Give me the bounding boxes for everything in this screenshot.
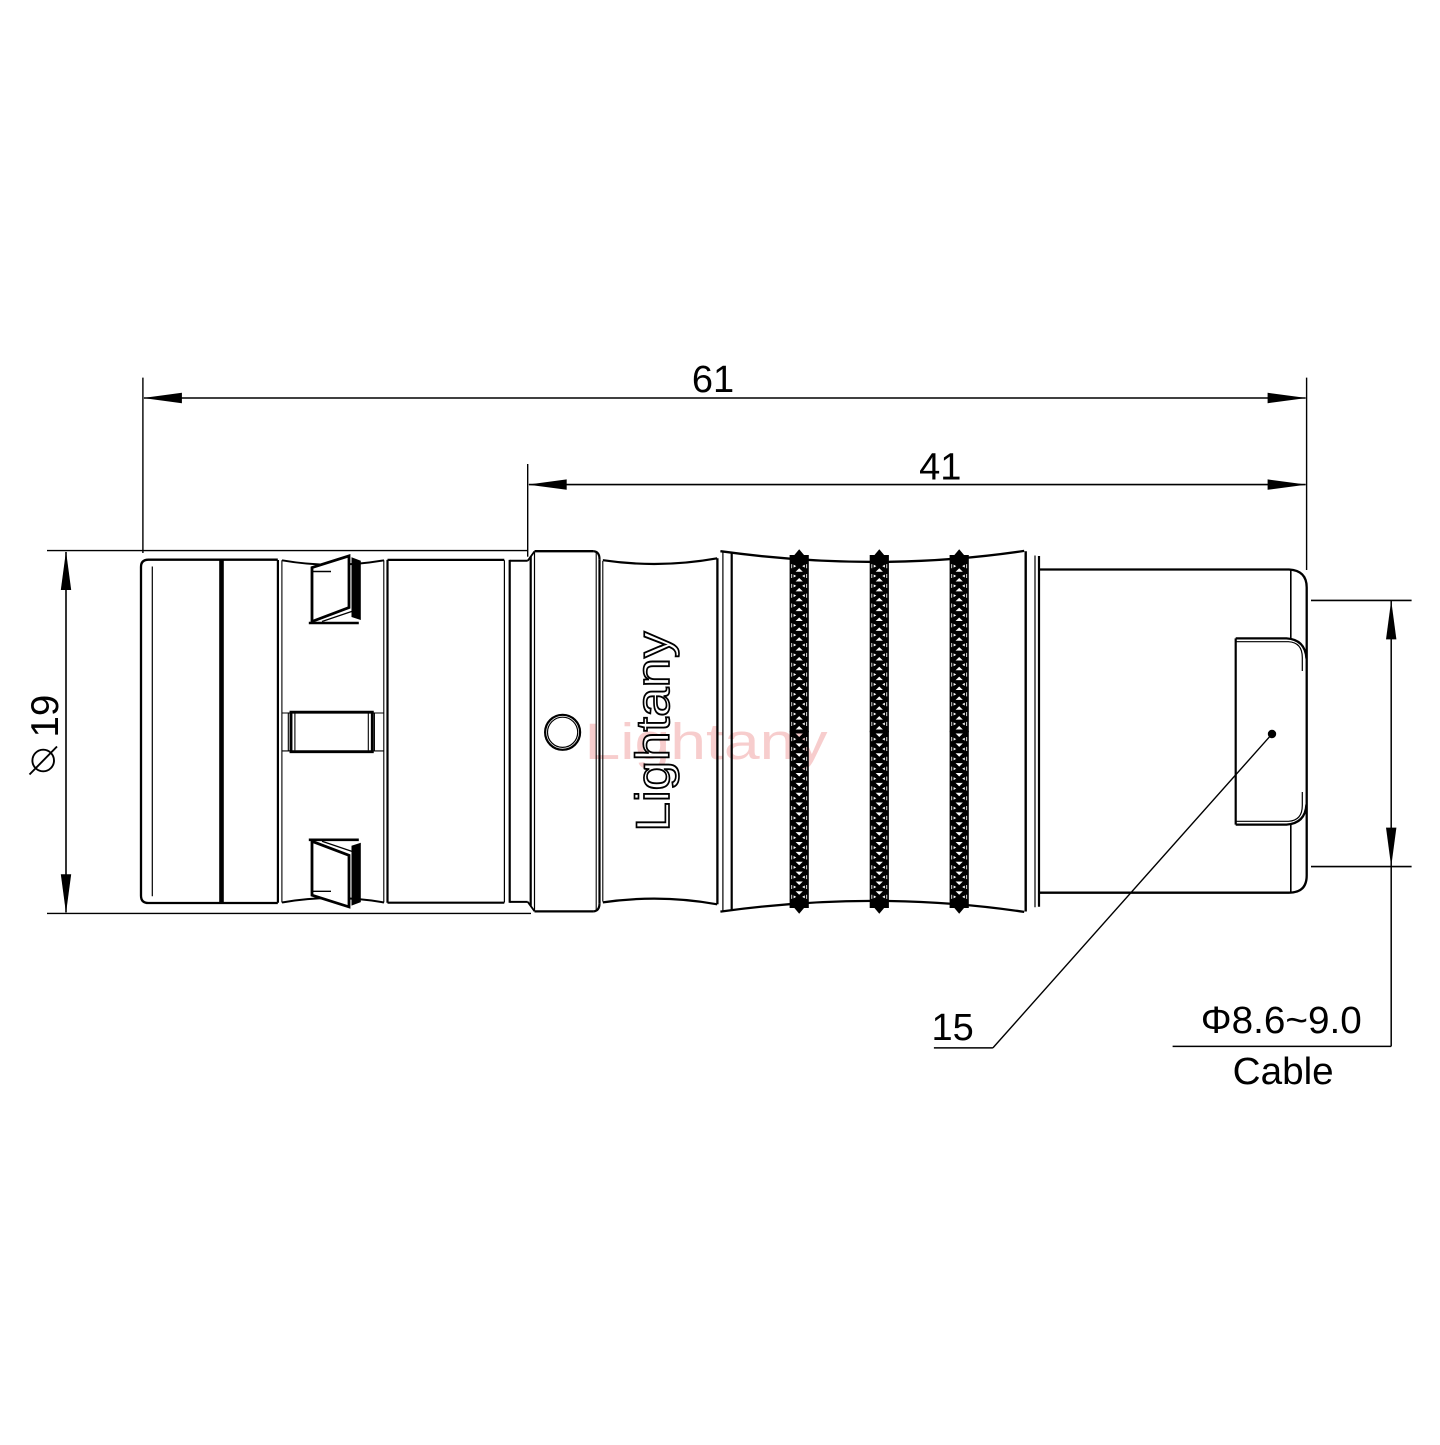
svg-text:Lightany: Lightany [627, 631, 680, 831]
svg-text:15: 15 [932, 1007, 974, 1049]
svg-text:41: 41 [919, 447, 961, 489]
svg-text:61: 61 [692, 359, 734, 401]
svg-text:Cable: Cable [1233, 1051, 1334, 1093]
svg-text:Φ8.6~9.0: Φ8.6~9.0 [1201, 1000, 1362, 1042]
svg-text:19: 19 [24, 695, 67, 738]
